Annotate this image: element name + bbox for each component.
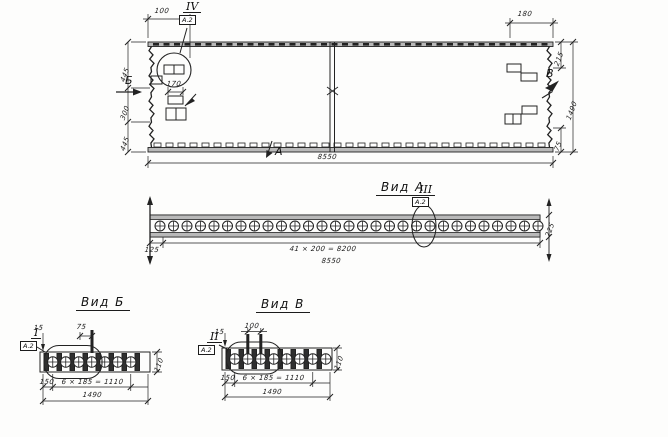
dim-va-left: 125: [144, 246, 159, 254]
dim-vv-spacing: 6 × 185 = 1110: [242, 374, 305, 382]
view-label-a: А: [275, 145, 283, 158]
plan-view: [116, 14, 578, 168]
bolt-row: [155, 221, 543, 231]
drawing-geometry: [0, 0, 668, 437]
embedded-plate: [522, 106, 537, 114]
dim-vb-total: 1490: [82, 391, 102, 399]
dim-plate: 170: [166, 80, 181, 88]
dim-vb-first: 150: [39, 378, 54, 386]
detail-sheet-ii: А.2: [198, 345, 215, 355]
section-arrow-b: [133, 89, 142, 96]
detail-numeral-iii: III: [416, 184, 435, 196]
detail-sheet-iii: А.2: [412, 197, 429, 207]
dim-top-left: 100: [154, 7, 169, 15]
section-flag-v: [545, 81, 559, 92]
view-a: [147, 196, 552, 265]
detail-numeral-iv: IV: [183, 1, 201, 13]
view-b-title: Вид Б: [76, 295, 130, 311]
detail-sheet-iv: А.2: [179, 15, 196, 25]
dim-vv-total: 1490: [262, 388, 282, 396]
dim-va-spacing: 41 × 200 = 8200: [289, 245, 357, 253]
dim-plan-total: 8550: [317, 153, 337, 161]
embedded-plate: [507, 64, 521, 72]
anchor-strip: [226, 350, 331, 369]
dim-vv-pins: 100: [244, 322, 259, 330]
break-cross: [327, 87, 338, 95]
dim-top-right: 180: [517, 10, 532, 18]
view-v-title: Вид В: [256, 297, 310, 313]
leader-arrowhead: [185, 98, 195, 106]
dim-va-total: 8550: [321, 257, 341, 265]
embedded-plate: [164, 65, 174, 74]
bottom-edge-teeth: [154, 143, 545, 147]
section-label-v: В: [546, 67, 554, 80]
anchor-pin: [259, 334, 262, 354]
anchor-pin: [246, 334, 249, 354]
dim-vb-edge: 15: [33, 324, 44, 332]
embedded-plate: [168, 96, 183, 104]
dim-vv-edge: 15: [214, 328, 225, 336]
embedded-plate: [521, 73, 537, 81]
dim-vb-spacing: 6 × 185 = 1110: [61, 378, 124, 386]
anchor-pin: [91, 330, 94, 353]
dim-vb-pin: 75: [76, 323, 87, 331]
technical-drawing: 100 IV А.2 180 Б В А 170 445 300 445 215…: [0, 0, 668, 437]
embedded-plate: [174, 65, 184, 74]
dim-vv-first: 150: [220, 374, 235, 382]
detail-sheet-i: А.2: [20, 341, 37, 351]
anchor-strip: [44, 354, 140, 371]
